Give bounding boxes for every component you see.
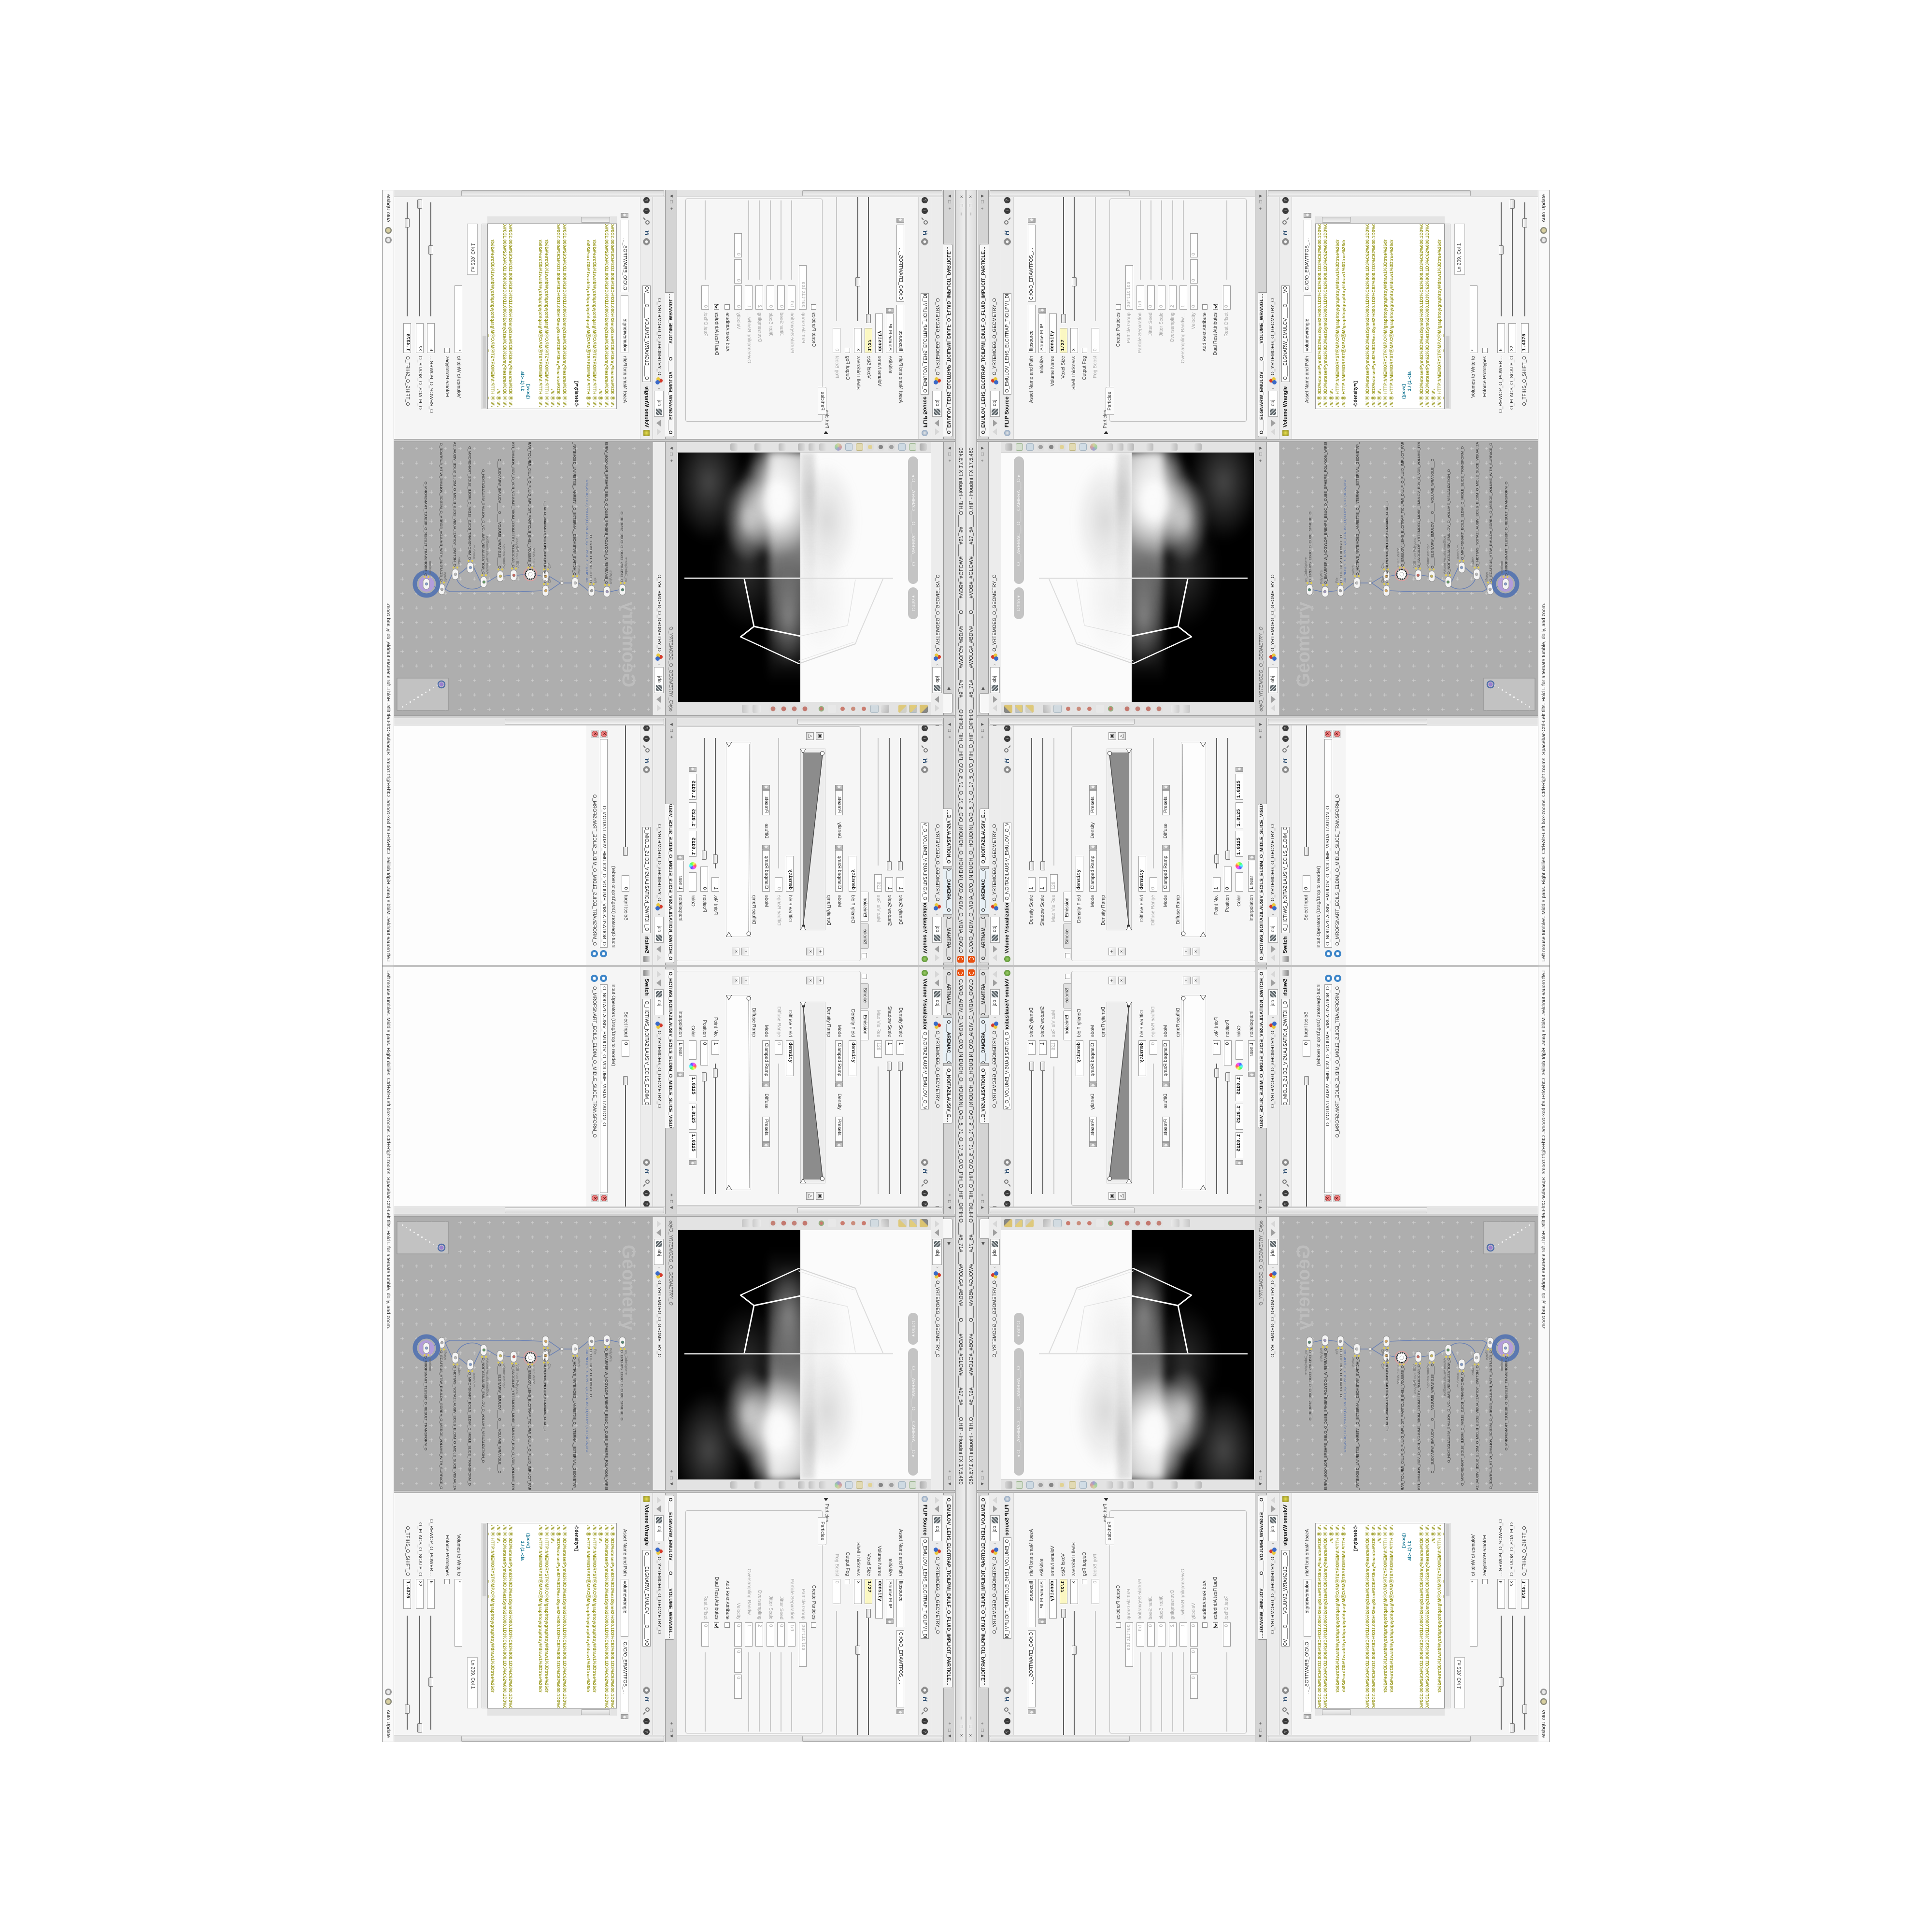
svg-text:O_HCTIWS_NOITAZILAUSIV_ECILS_E: O_HCTIWS_NOITAZILAUSIV_ECILS_ELDIM_O_MID… — [453, 1365, 457, 1490]
svg-text:O_EREHPS_EBUC_O_CUBE_SPHERE_O: O_EREHPS_EBUC_O_CUBE_SPHERE_O — [1308, 1350, 1312, 1421]
svg-text:Transform: Transform — [1501, 1356, 1504, 1371]
svg-text:FLIP Source: FLIP Source — [532, 548, 535, 567]
svg-text:FLIP Source: FLIP Source — [532, 1365, 535, 1384]
svg-text:Switch: Switch — [577, 565, 580, 575]
svg-text:an_CubeSphere: an_CubeSphere — [624, 557, 627, 582]
svg-text:O_HCTIWS_YRTEMOEG_LANRETXE_O_I: O_HCTIWS_YRTEMOEG_LANRETXE_O_INTERNAL_EX… — [572, 1357, 577, 1490]
svg-text:O_MROFSNART_ECILS_ELDIM_O_MIDL: O_MROFSNART_ECILS_ELDIM_O_MIDLE_SLICE_TR… — [1460, 446, 1464, 560]
svg-text:Switch: Switch — [457, 1365, 460, 1376]
svg-text:Geometry: Geometry — [618, 1245, 639, 1330]
svg-text:Transform: Transform — [1457, 544, 1460, 560]
svg-text:Clip: Clip — [547, 577, 551, 583]
svg-text:O_MROFSNART_TLUSER_O_RESULT_TR: O_MROFSNART_TLUSER_O_RESULT_TRANSFORM_O — [1504, 482, 1508, 576]
svg-text:Volume VisualizationSlice: Volume VisualizationSlice — [1443, 1358, 1447, 1396]
svg-text:Merge: Merge — [443, 572, 447, 582]
svg-text:JBO.NO3,PETS,TRPOLS,O_GENUSS_O: JBO.NO3,PETS,TRPOLS,O_GENUSS_O,SLOPPT,ST… — [1344, 480, 1347, 583]
svg-text:Transform: Transform — [1457, 1372, 1460, 1388]
svg-text:Volume Wrangle: Volume Wrangle — [502, 544, 505, 568]
svg-text:Switch: Switch — [1472, 556, 1475, 567]
svg-text:O_EMULOV_LEHS_ELCITRAP_TICILPM: O_EMULOV_LEHS_ELCITRAP_TICILPMI_DIULF_O_… — [527, 442, 532, 567]
svg-text:O_NOITAZILAUSIV_EMULOV_O_VOLUM: O_NOITAZILAUSIV_EMULOV_O_VOLUME_VISUALIZ… — [1447, 469, 1451, 574]
svg-text:Switch: Switch — [1352, 1357, 1355, 1367]
svg-text:VDB from Polygons: VDB from Polygons — [515, 1364, 519, 1394]
svg-text:an_CubeSphere: an_CubeSphere — [1305, 1350, 1308, 1375]
svg-text:O_EREHPS_EBUC_O_CUBE_SPHERE_O: O_EREHPS_EBUC_O_CUBE_SPHERE_O — [1308, 511, 1312, 582]
svg-text:Clip: Clip — [547, 1349, 551, 1355]
svg-text:Clip: Clip — [1381, 563, 1385, 568]
svg-text:O_MROFSNART_ECILS_ELDIM_O_MIDL: O_MROFSNART_ECILS_ELDIM_O_MIDLE_SLICE_TR… — [468, 1372, 472, 1486]
svg-text:O_SNOGILOP_YRTEMOEG_MORF_EMULO: O_SNOGILOP_YRTEMOEG_MORF_EMULOV_BDV_O_VD… — [511, 442, 515, 568]
svg-text:FLIP Source: FLIP Source — [1397, 1365, 1400, 1384]
svg-text:O_NOITAZILAUSIV_EMULOV_O_VOLUM: O_NOITAZILAUSIV_EMULOV_O_VOLUME_VISUALIZ… — [481, 469, 485, 574]
svg-text:O_ECAFRUS_HTIW_EMULOV_EGREM_O_: O_ECAFRUS_HTIW_EMULOV_EGREM_O_MERGE_VOLU… — [439, 1350, 443, 1489]
svg-text:Clip: Clip — [1381, 577, 1385, 583]
svg-text:PolyWire: PolyWire — [1320, 1348, 1323, 1362]
svg-text:O_ECAFRUS_HTIW_EMULOV_EGREM_O_: O_ECAFRUS_HTIW_EMULOV_EGREM_O_MERGE_VOLU… — [1489, 443, 1493, 582]
svg-text:File: File — [1335, 578, 1339, 583]
svg-text:O_NOITAZILAUSIV_EMULOV_O_VOLUM: O_NOITAZILAUSIV_EMULOV_O_VOLUME_VISUALIZ… — [1447, 1358, 1451, 1463]
svg-text:O_MROFSNART_TLUSER_O_RESULT_TR: O_MROFSNART_TLUSER_O_RESULT_TRANSFORM_O — [424, 482, 428, 576]
svg-text:O_SNOGILOP_YRTEMOEG_MORF_EMULO: O_SNOGILOP_YRTEMOEG_MORF_EMULOV_BDV_O_VD… — [1417, 442, 1421, 568]
svg-text:Switch: Switch — [1352, 565, 1355, 575]
svg-text:O_HCTIWS_NOITAZILAUSIV_ECILS_E: O_HCTIWS_NOITAZILAUSIV_ECILS_ELDIM_O_MID… — [1475, 442, 1479, 567]
svg-text:Clip: Clip — [547, 563, 551, 568]
svg-text:O_EREHPS_EBUC_O_CUBE_SPHERE_O: O_EREHPS_EBUC_O_CUBE_SPHERE_O — [620, 1350, 624, 1421]
svg-text:FLIP Source: FLIP Source — [1397, 548, 1400, 567]
svg-text:an_CubeSphere: an_CubeSphere — [1305, 557, 1308, 582]
svg-text:O_EMARFERIW_NOGYLOP_EREHPS_EBU: O_EMARFERIW_NOGYLOP_EREHPS_EBUC_O_CUBE_S… — [1323, 1348, 1328, 1490]
svg-text:O_EMARFERIW_NOGYLOP_EREHPS_EBU: O_EMARFERIW_NOGYLOP_EREHPS_EBUC_O_CUBE_S… — [604, 442, 609, 584]
svg-text:Volume Wrangle: Volume Wrangle — [502, 1364, 505, 1388]
svg-text:PolyWire: PolyWire — [609, 1348, 612, 1362]
svg-text:Clip: Clip — [1381, 1364, 1385, 1369]
svg-text:O_ELIF_BDV_O_BUBBLE_O: O_ELIF_BDV_O_BUBBLE_O — [1339, 1349, 1343, 1397]
svg-text:an_CubeSphere: an_CubeSphere — [624, 1350, 627, 1375]
svg-text:Merge: Merge — [1485, 572, 1489, 582]
svg-text:Transform: Transform — [472, 544, 475, 560]
svg-text:Switch: Switch — [457, 556, 460, 567]
svg-text:Volume Wrangle: Volume Wrangle — [1427, 544, 1430, 568]
svg-text:Clip: Clip — [547, 1364, 551, 1369]
svg-text:O_MROFSNART_ECILS_ELDIM_O_MIDL: O_MROFSNART_ECILS_ELDIM_O_MIDLE_SLICE_TR… — [1460, 1372, 1464, 1486]
svg-text:O____ELGNARW_EMULOV____O____VO: O____ELGNARW_EMULOV____O____VOLUME_WRANG… — [497, 1364, 502, 1474]
svg-text:O_ECAFRUS_PILC_O_CLIP_SURFACE_: O_ECAFRUS_PILC_O_CLIP_SURFACE_O — [543, 1349, 547, 1420]
svg-text:O_EMULOV_LEHS_ELCITRAP_TICILPM: O_EMULOV_LEHS_ELCITRAP_TICILPMI_DIULF_O_… — [1400, 1365, 1405, 1490]
svg-text:Transform: Transform — [428, 561, 431, 576]
svg-text:Merge: Merge — [1485, 1350, 1489, 1360]
svg-text:Geometry: Geometry — [1293, 602, 1314, 687]
svg-text:O_EMARFERIW_NOGYLOP_EREHPS_EBU: O_EMARFERIW_NOGYLOP_EREHPS_EBUC_O_CUBE_S… — [604, 1348, 609, 1490]
svg-text:VDB from Polygons: VDB from Polygons — [1413, 1364, 1417, 1394]
svg-text:VDB from Polygons: VDB from Polygons — [515, 538, 519, 568]
svg-text:O_ELIF_BDV_O_BUBBLE_O: O_ELIF_BDV_O_BUBBLE_O — [589, 535, 593, 583]
svg-text:Switch: Switch — [577, 1357, 580, 1367]
svg-text:Transform: Transform — [472, 1372, 475, 1388]
svg-text:O_EREHPS_EBUC_O_CUBE_SPHERE_O: O_EREHPS_EBUC_O_CUBE_SPHERE_O — [620, 511, 624, 582]
svg-text:File: File — [593, 578, 597, 583]
svg-text:O_SNOGILOP_YRTEMOEG_MORF_EMULO: O_SNOGILOP_YRTEMOEG_MORF_EMULOV_BDV_O_VD… — [1417, 1364, 1421, 1490]
svg-text:Transform: Transform — [428, 1356, 431, 1371]
svg-text:JBO.NO3,PETS,TRPOLS,O_GENUSS_O: JBO.NO3,PETS,TRPOLS,O_GENUSS_O,SLOPPT,ST… — [1344, 1349, 1347, 1452]
svg-text:O____ELGNARW_EMULOV____O____VO: O____ELGNARW_EMULOV____O____VOLUME_WRANG… — [1430, 1364, 1435, 1474]
svg-text:O_ELIF_BDV_O_BUBBLE_O: O_ELIF_BDV_O_BUBBLE_O — [1339, 535, 1343, 583]
svg-text:O_HCTIWS_YRTEMOEG_LANRETXE_O_I: O_HCTIWS_YRTEMOEG_LANRETXE_O_INTERNAL_EX… — [572, 442, 577, 575]
svg-text:O_ECAFRUS_PILC_O_CLIP_SURFACE_: O_ECAFRUS_PILC_O_CLIP_SURFACE_O — [1385, 1349, 1389, 1420]
svg-text:O_EMULOV_LEHS_ELCITRAP_TICILPM: O_EMULOV_LEHS_ELCITRAP_TICILPMI_DIULF_O_… — [1400, 442, 1405, 567]
svg-text:Switch: Switch — [1472, 1365, 1475, 1376]
svg-text:JBO.NO3,PETS,TRPOLS,O_GENUSS_O: JBO.NO3,PETS,TRPOLS,O_GENUSS_O,SLOPPT,ST… — [585, 1349, 588, 1452]
svg-text:Geometry: Geometry — [618, 602, 639, 687]
svg-text:O_HCTIWS_NOITAZILAUSIV_ECILS_E: O_HCTIWS_NOITAZILAUSIV_ECILS_ELDIM_O_MID… — [453, 442, 457, 567]
svg-text:Geometry: Geometry — [1293, 1245, 1314, 1330]
svg-text:O_ECAFRUS_PILC_O_CLIP_SURFACE_: O_ECAFRUS_PILC_O_CLIP_SURFACE_O — [1385, 512, 1389, 583]
svg-text:O____ELGNARW_EMULOV____O____VO: O____ELGNARW_EMULOV____O____VOLUME_WRANG… — [1430, 458, 1435, 568]
svg-text:O_HCTIWS_YRTEMOEG_LANRETXE_O_I: O_HCTIWS_YRTEMOEG_LANRETXE_O_INTERNAL_EX… — [1355, 442, 1360, 575]
svg-text:PolyWire: PolyWire — [609, 570, 612, 584]
svg-text:File: File — [593, 1349, 597, 1354]
svg-text:Merge: Merge — [443, 1350, 447, 1360]
svg-text:O_MROFSNART_TLUSER_O_RESULT_TR: O_MROFSNART_TLUSER_O_RESULT_TRANSFORM_O — [1504, 1356, 1508, 1450]
svg-text:O_EMULOV_LEHS_ELCITRAP_TICILPM: O_EMULOV_LEHS_ELCITRAP_TICILPMI_DIULF_O_… — [527, 1365, 532, 1490]
svg-text:O_ELIF_BDV_O_BUBBLE_O: O_ELIF_BDV_O_BUBBLE_O — [589, 1349, 593, 1397]
svg-text:Volume VisualizationSlice: Volume VisualizationSlice — [485, 1358, 489, 1396]
svg-text:O_ECAFRUS_PILC_O_CLIP_SURFACE_: O_ECAFRUS_PILC_O_CLIP_SURFACE_O — [543, 512, 547, 583]
svg-text:O_MROFSNART_TLUSER_O_RESULT_TR: O_MROFSNART_TLUSER_O_RESULT_TRANSFORM_O — [424, 1356, 428, 1450]
svg-text:O_SNOGILOP_YRTEMOEG_MORF_EMULO: O_SNOGILOP_YRTEMOEG_MORF_EMULOV_BDV_O_VD… — [511, 1364, 515, 1490]
svg-text:O_MROFSNART_ECILS_ELDIM_O_MIDL: O_MROFSNART_ECILS_ELDIM_O_MIDLE_SLICE_TR… — [468, 446, 472, 560]
svg-text:PolyWire: PolyWire — [1320, 570, 1323, 584]
svg-text:Volume Wrangle: Volume Wrangle — [1427, 1364, 1430, 1388]
svg-text:O_HCTIWS_NOITAZILAUSIV_ECILS_E: O_HCTIWS_NOITAZILAUSIV_ECILS_ELDIM_O_MID… — [1475, 1365, 1479, 1490]
svg-text:Transform: Transform — [1501, 561, 1504, 576]
svg-text:VDB from Polygons: VDB from Polygons — [1413, 538, 1417, 568]
svg-text:O_ECAFRUS_HTIW_EMULOV_EGREM_O_: O_ECAFRUS_HTIW_EMULOV_EGREM_O_MERGE_VOLU… — [1489, 1350, 1493, 1489]
svg-text:Clip: Clip — [1381, 1349, 1385, 1355]
svg-text:Volume VisualizationSlice: Volume VisualizationSlice — [1443, 536, 1447, 574]
svg-text:JBO.NO3,PETS,TRPOLS,O_GENUSS_O: JBO.NO3,PETS,TRPOLS,O_GENUSS_O,SLOPPT,ST… — [585, 480, 588, 583]
svg-text:O_ECAFRUS_HTIW_EMULOV_EGREM_O_: O_ECAFRUS_HTIW_EMULOV_EGREM_O_MERGE_VOLU… — [439, 443, 443, 582]
svg-text:O_HCTIWS_YRTEMOEG_LANRETXE_O_I: O_HCTIWS_YRTEMOEG_LANRETXE_O_INTERNAL_EX… — [1355, 1357, 1360, 1490]
svg-text:File: File — [1335, 1349, 1339, 1354]
svg-text:O_NOITAZILAUSIV_EMULOV_O_VOLUM: O_NOITAZILAUSIV_EMULOV_O_VOLUME_VISUALIZ… — [481, 1358, 485, 1463]
svg-text:O____ELGNARW_EMULOV____O____VO: O____ELGNARW_EMULOV____O____VOLUME_WRANG… — [497, 458, 502, 568]
svg-text:O_EMARFERIW_NOGYLOP_EREHPS_EBU: O_EMARFERIW_NOGYLOP_EREHPS_EBUC_O_CUBE_S… — [1323, 442, 1328, 584]
svg-text:Volume VisualizationSlice: Volume VisualizationSlice — [485, 536, 489, 574]
